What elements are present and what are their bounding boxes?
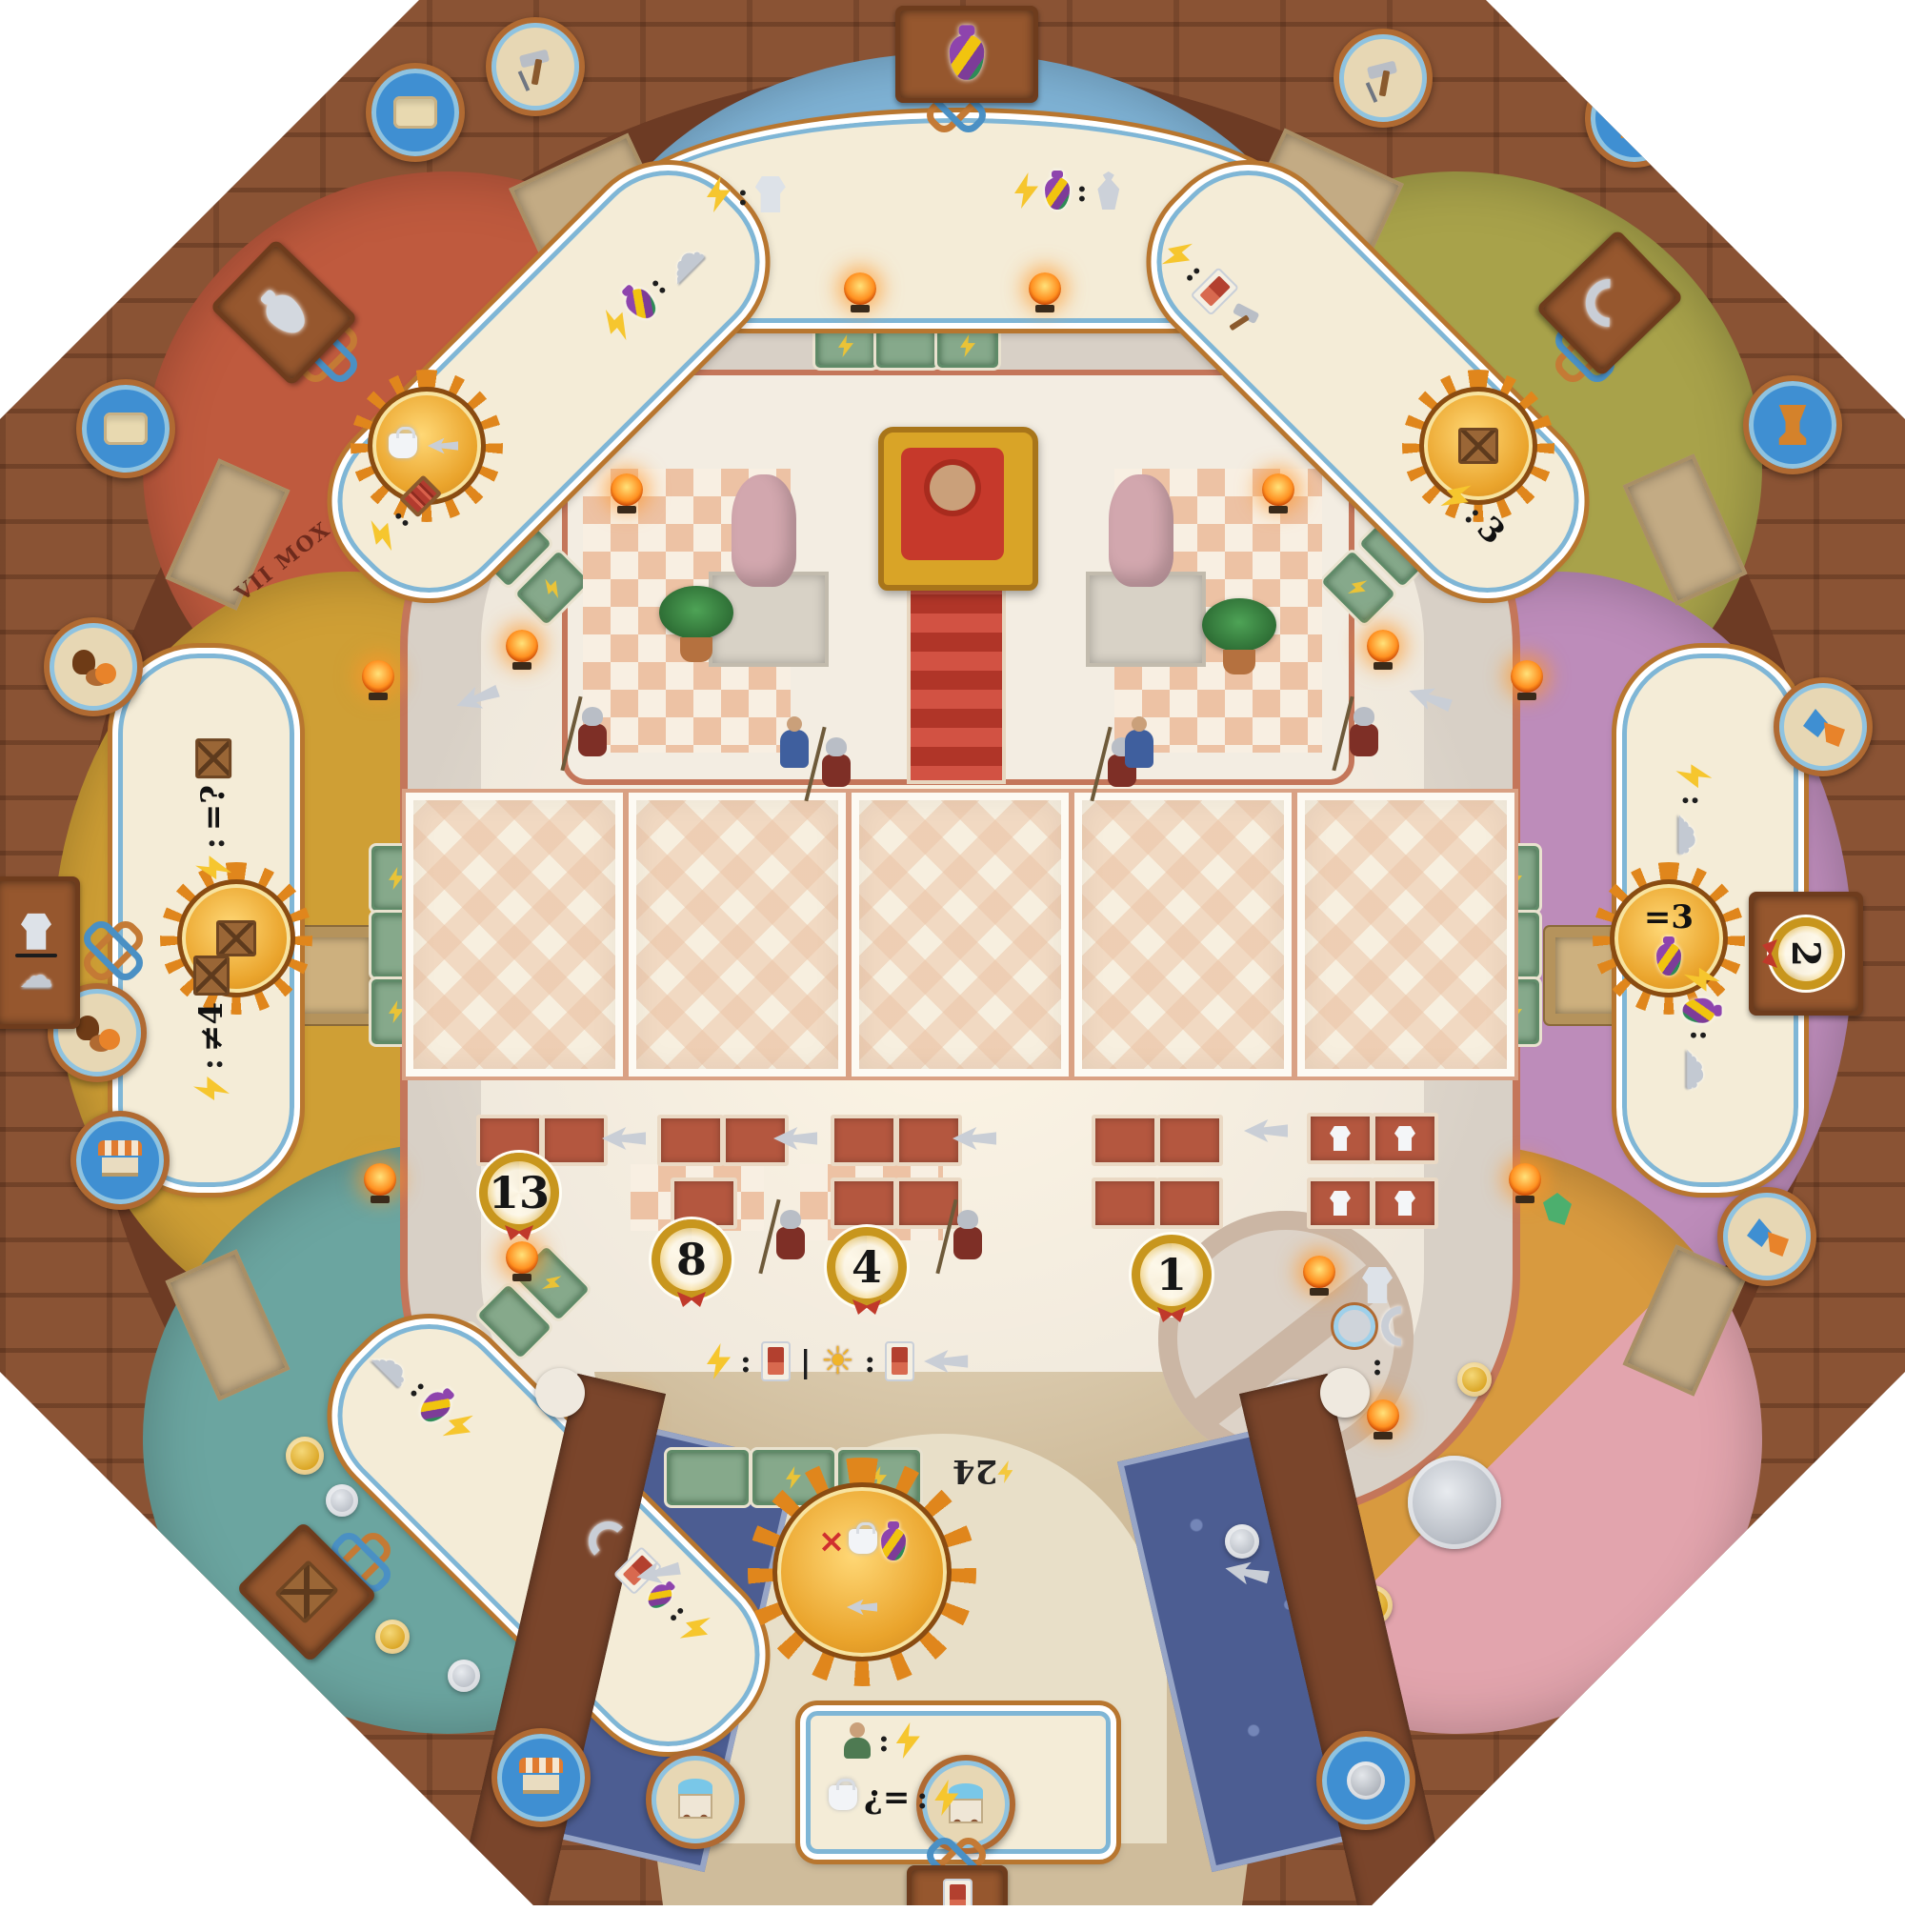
amphora-icon bbox=[1045, 177, 1070, 210]
toga-space[interactable] bbox=[1372, 1113, 1438, 1164]
card-area-1[interactable] bbox=[406, 793, 623, 1077]
victory-wreath-2: 2 bbox=[1770, 917, 1842, 990]
lightning-icon bbox=[195, 855, 231, 879]
medallion-shards bbox=[1717, 1187, 1816, 1286]
card-area-2[interactable] bbox=[629, 793, 846, 1077]
arrow-icon bbox=[847, 1598, 877, 1618]
toga-cloud-plaque: ☁ bbox=[0, 876, 80, 1029]
goods-space[interactable] bbox=[1092, 1115, 1158, 1166]
goods-space[interactable] bbox=[831, 1115, 897, 1166]
coin-icon bbox=[1225, 1524, 1259, 1559]
torch bbox=[844, 272, 876, 305]
amphora-icon bbox=[1656, 943, 1681, 976]
lightning-icon bbox=[707, 176, 731, 212]
lightning-icon bbox=[539, 1270, 566, 1297]
lightning-icon bbox=[934, 1780, 958, 1816]
amphora-icon bbox=[881, 1528, 906, 1560]
cloud-icon: ☁ bbox=[1682, 1048, 1721, 1092]
silver-coin-icon bbox=[1408, 1456, 1501, 1549]
amphora-icon bbox=[644, 1580, 676, 1613]
warehouse-formula-1: : =? bbox=[195, 738, 231, 879]
colon: : bbox=[198, 837, 229, 849]
card-area-4[interactable] bbox=[1074, 793, 1292, 1077]
arrow-icon bbox=[924, 1347, 968, 1376]
guard bbox=[768, 1208, 812, 1271]
goblet-icon bbox=[1776, 405, 1809, 445]
torch bbox=[1303, 1256, 1335, 1288]
colon: : bbox=[916, 1782, 928, 1813]
medallion-coin bbox=[1316, 1731, 1415, 1830]
energy-space[interactable] bbox=[876, 324, 937, 368]
stall-icon bbox=[519, 1758, 563, 1798]
divider: | bbox=[800, 1346, 812, 1377]
colon: : bbox=[1687, 1030, 1717, 1041]
value-eq-unknown: =? bbox=[197, 785, 230, 831]
torch bbox=[1511, 660, 1543, 693]
lightning-icon bbox=[389, 1000, 404, 1023]
lightning-icon bbox=[1675, 764, 1712, 788]
lightning-icon bbox=[896, 1722, 920, 1759]
torch bbox=[1509, 1163, 1541, 1196]
marble-head bbox=[535, 1368, 585, 1418]
person-card-icon bbox=[885, 1341, 914, 1381]
marble-head bbox=[1320, 1368, 1370, 1418]
guard bbox=[570, 705, 613, 768]
goods-space[interactable] bbox=[1156, 1177, 1223, 1229]
guard bbox=[945, 1208, 989, 1271]
colon: : bbox=[1372, 1349, 1383, 1379]
toga-icon bbox=[1394, 1126, 1415, 1151]
action-conversion-strip: : | ☀ : bbox=[707, 1341, 968, 1381]
torch bbox=[362, 660, 394, 693]
bag-icon bbox=[849, 1529, 877, 1554]
goods-space[interactable] bbox=[1092, 1177, 1158, 1229]
guard bbox=[1341, 705, 1385, 768]
cross-mark: × bbox=[818, 1525, 846, 1558]
bag-icon bbox=[829, 1785, 857, 1810]
toga-space[interactable] bbox=[1307, 1177, 1374, 1229]
coin-icon bbox=[1333, 1305, 1375, 1347]
cloud-icon: ☁ bbox=[1674, 813, 1714, 856]
energy-space[interactable] bbox=[815, 324, 876, 368]
red-carpet bbox=[907, 572, 1006, 784]
crate-icon bbox=[195, 738, 231, 778]
colon: : bbox=[878, 1725, 890, 1756]
hammer-icon bbox=[1362, 57, 1404, 99]
game-board: VII MOX XII 8 4 1 bbox=[0, 0, 1905, 1905]
spice-icon bbox=[74, 1014, 120, 1052]
torch bbox=[364, 1163, 396, 1196]
value-inverted-eq: ¿= bbox=[864, 1781, 910, 1814]
medallion-sculptor bbox=[486, 17, 585, 116]
cloth-formula-2: : ☁ bbox=[1682, 968, 1721, 1092]
entrance-sun-mosaic: × bbox=[748, 1458, 976, 1686]
citizen bbox=[1122, 716, 1156, 770]
statue-right bbox=[1109, 474, 1173, 587]
lightning-icon bbox=[838, 334, 853, 357]
lightning-icon bbox=[1684, 968, 1720, 992]
toga-icon bbox=[1394, 1191, 1415, 1216]
warehouse-formula-2: : ≠4 bbox=[193, 956, 230, 1100]
medallion-goblet bbox=[1585, 69, 1684, 168]
goods-space[interactable] bbox=[657, 1115, 724, 1166]
card-plaque bbox=[907, 1865, 1008, 1932]
cart-icon bbox=[1458, 428, 1498, 464]
guard bbox=[813, 735, 857, 798]
card-area-3[interactable] bbox=[852, 793, 1069, 1077]
plant-left bbox=[655, 586, 737, 668]
coin-icon bbox=[1457, 1362, 1492, 1397]
goblet-icon bbox=[1618, 98, 1651, 138]
medallion-fountain bbox=[646, 1750, 745, 1849]
lightning-icon bbox=[1014, 172, 1038, 209]
person-card-icon bbox=[761, 1341, 791, 1381]
arrow-icon bbox=[428, 436, 458, 456]
torch bbox=[1367, 630, 1399, 662]
medallion-spices bbox=[44, 617, 143, 716]
medallion-stall bbox=[491, 1728, 591, 1827]
torch bbox=[506, 630, 538, 662]
coin-icon bbox=[326, 1484, 358, 1517]
hammer-icon bbox=[514, 46, 556, 88]
sculptor-formula-2: : bbox=[1014, 171, 1123, 210]
coin-icon bbox=[1347, 1761, 1385, 1800]
toga-icon bbox=[21, 914, 51, 950]
goods-space[interactable] bbox=[895, 1115, 962, 1166]
crate-icon bbox=[193, 956, 230, 996]
warehouse-sun-mosaic bbox=[160, 862, 312, 1015]
statue-left bbox=[732, 474, 796, 587]
coin-icon bbox=[375, 1620, 410, 1654]
spice-icon bbox=[70, 648, 116, 686]
person-icon bbox=[843, 1722, 872, 1759]
toga-icon bbox=[755, 176, 786, 212]
emperor bbox=[930, 465, 975, 511]
medallion-scroll bbox=[76, 379, 175, 478]
lightning-icon bbox=[707, 1343, 731, 1379]
lightning-icon bbox=[193, 1077, 230, 1100]
coin-icon bbox=[286, 1437, 324, 1475]
cloth-formula-1: : ☁ bbox=[1674, 764, 1714, 856]
coin-icon bbox=[448, 1660, 480, 1692]
sickle-icon bbox=[1575, 269, 1643, 336]
colon: : bbox=[737, 179, 749, 210]
shards-icon bbox=[1745, 1215, 1789, 1258]
lightning-icon bbox=[960, 334, 975, 357]
statue-icon bbox=[1094, 171, 1123, 210]
crate-icon bbox=[274, 1560, 339, 1624]
amphora-icon bbox=[950, 34, 984, 80]
shards-icon bbox=[1801, 705, 1845, 749]
lightning-icon bbox=[389, 867, 404, 890]
torch bbox=[611, 473, 643, 506]
colon: : bbox=[1678, 795, 1709, 806]
sculptor-formula-1: : bbox=[707, 176, 786, 212]
knot-icon bbox=[76, 913, 143, 979]
two-wreath-plaque: 2 bbox=[1749, 892, 1863, 1016]
goods-space[interactable] bbox=[541, 1115, 608, 1166]
amphora-plaque bbox=[895, 6, 1038, 103]
silver-amphora-icon bbox=[260, 289, 312, 341]
sun-icon: ☀ bbox=[820, 1342, 854, 1380]
scroll-icon bbox=[104, 413, 148, 445]
plant-right bbox=[1198, 598, 1280, 680]
lightning-icon bbox=[1345, 574, 1372, 601]
cloud-icon: ☁ bbox=[19, 961, 53, 992]
colon: : bbox=[196, 1058, 227, 1070]
crate-icon bbox=[216, 920, 256, 956]
victory-wreath-4: 4 bbox=[827, 1227, 907, 1307]
goods-space[interactable] bbox=[831, 1177, 897, 1229]
value-eq-three: =3 bbox=[1644, 901, 1694, 934]
fountain-icon bbox=[674, 1779, 716, 1821]
medallion-scroll bbox=[366, 63, 465, 162]
colon: : bbox=[740, 1346, 752, 1377]
victory-wreath-13: 13 bbox=[479, 1153, 559, 1233]
medallion-goblet bbox=[1743, 375, 1842, 474]
stall-icon bbox=[98, 1140, 142, 1180]
energy-space[interactable] bbox=[937, 324, 998, 368]
medallion-shards bbox=[1774, 677, 1873, 776]
torch bbox=[506, 1241, 538, 1274]
person-card-icon bbox=[943, 1879, 973, 1919]
treasury-formula: : bbox=[1333, 1267, 1421, 1379]
victory-wreath-8: 8 bbox=[652, 1219, 732, 1299]
colon: : bbox=[1076, 175, 1088, 206]
toga-space[interactable] bbox=[1372, 1177, 1438, 1229]
entrance-formula-2: ¿= : bbox=[829, 1780, 958, 1816]
medallion-sculptor bbox=[1333, 29, 1433, 128]
toga-space[interactable] bbox=[1307, 1113, 1374, 1164]
energy-space[interactable] bbox=[667, 1450, 749, 1505]
entrance-formula-1: : bbox=[843, 1722, 920, 1759]
victory-wreath-1: 1 bbox=[1132, 1235, 1212, 1315]
hook-icon bbox=[589, 1521, 629, 1561]
bag-icon bbox=[389, 433, 417, 458]
goods-space[interactable] bbox=[1156, 1115, 1223, 1166]
colon: : bbox=[864, 1346, 875, 1377]
toga-icon bbox=[1330, 1126, 1351, 1151]
medallion-stall bbox=[70, 1111, 170, 1210]
torch bbox=[1367, 1399, 1399, 1432]
amphora-icon bbox=[1683, 998, 1715, 1023]
card-area-5[interactable] bbox=[1297, 793, 1514, 1077]
value-neq-four: ≠4 bbox=[195, 1002, 228, 1052]
toga-icon bbox=[1362, 1267, 1393, 1303]
torch bbox=[1262, 473, 1294, 506]
scroll-icon bbox=[393, 96, 437, 129]
lightning-icon bbox=[997, 1460, 1013, 1483]
toga-icon bbox=[1330, 1191, 1351, 1216]
torch bbox=[1029, 272, 1061, 305]
cloth-sun-mosaic: =3 bbox=[1593, 862, 1745, 1015]
citizen bbox=[777, 716, 812, 770]
lightning-icon bbox=[539, 574, 566, 601]
